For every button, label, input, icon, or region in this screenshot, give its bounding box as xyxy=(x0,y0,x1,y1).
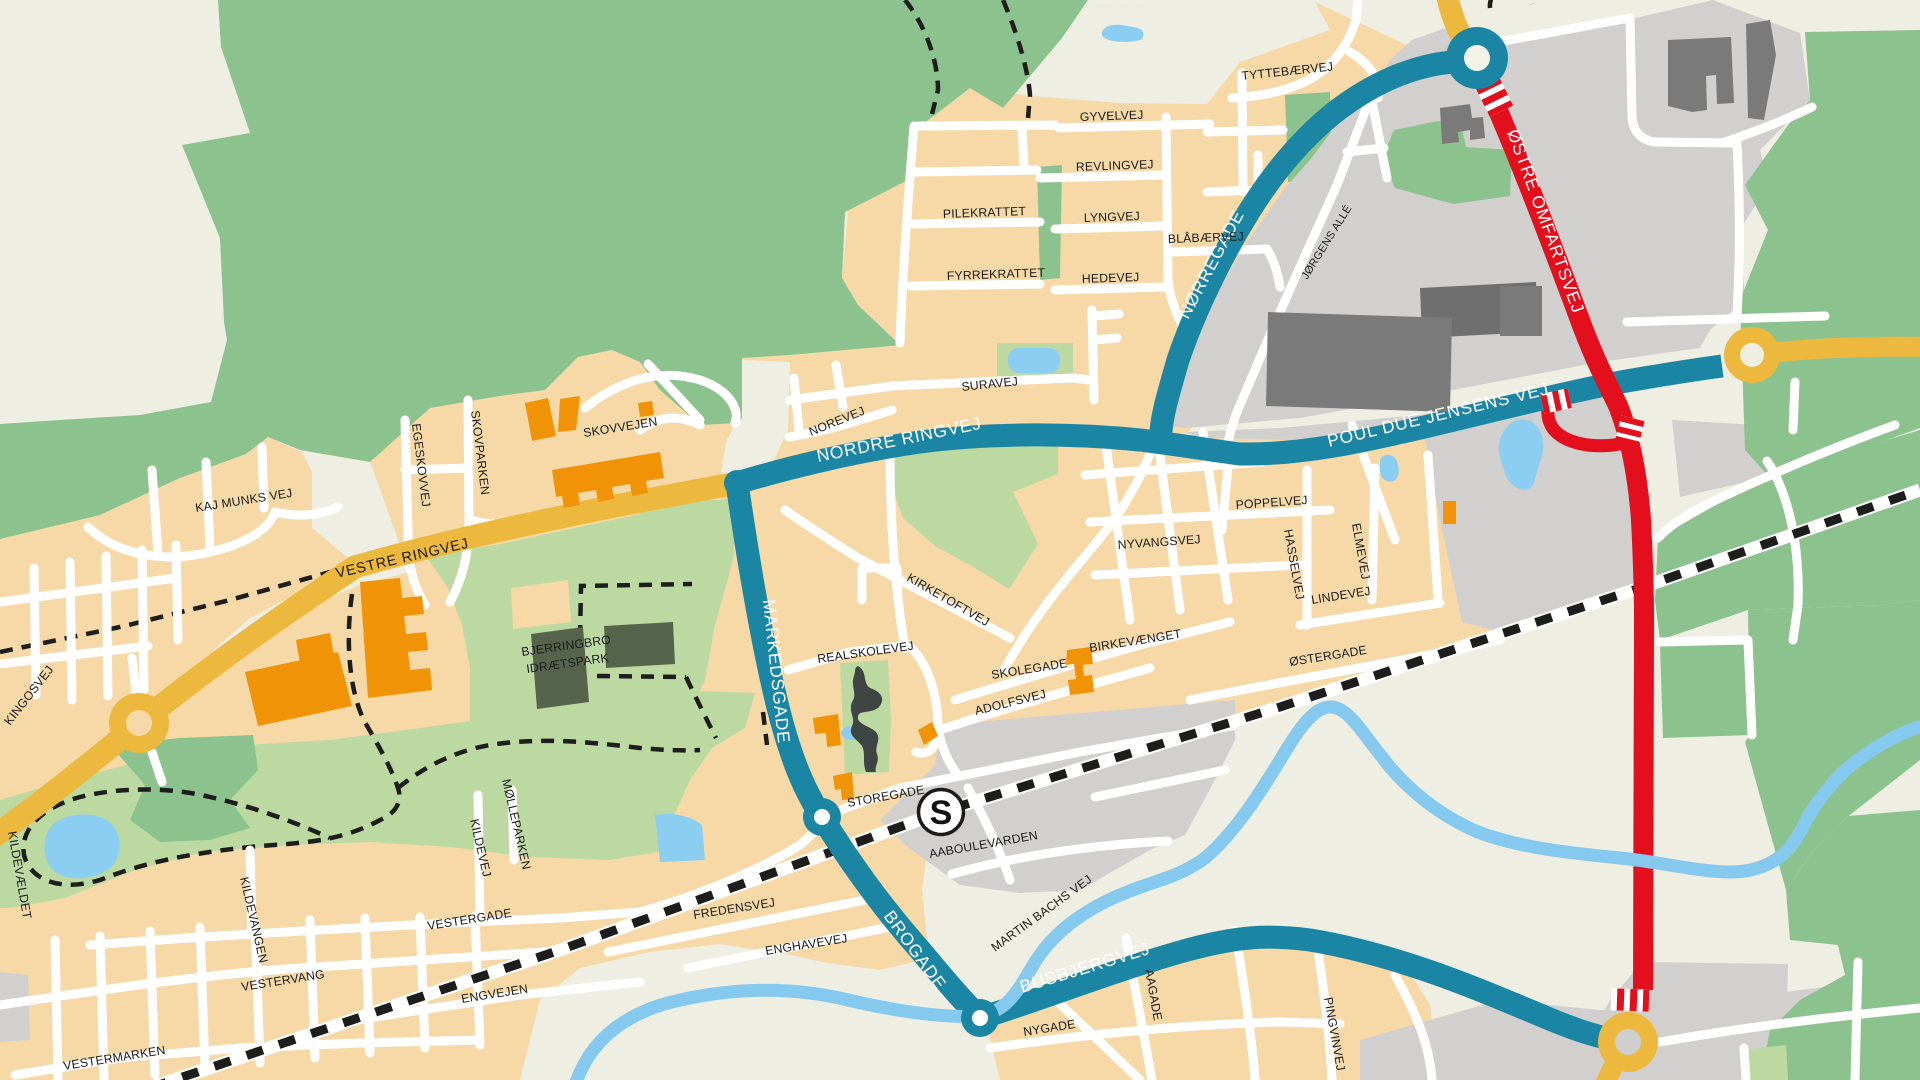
svg-text:PILEKRATTET: PILEKRATTET xyxy=(943,204,1027,221)
svg-text:HEDEVEJ: HEDEVEJ xyxy=(1082,270,1140,286)
svg-text:REVLINGVEJ: REVLINGVEJ xyxy=(1076,157,1154,174)
svg-text:LYNGVEJ: LYNGVEJ xyxy=(1084,209,1141,225)
svg-text:GYVELVEJ: GYVELVEJ xyxy=(1080,108,1144,124)
svg-text:S: S xyxy=(930,794,953,832)
svg-text:BLÅBÆRVEJ: BLÅBÆRVEJ xyxy=(1168,228,1245,246)
